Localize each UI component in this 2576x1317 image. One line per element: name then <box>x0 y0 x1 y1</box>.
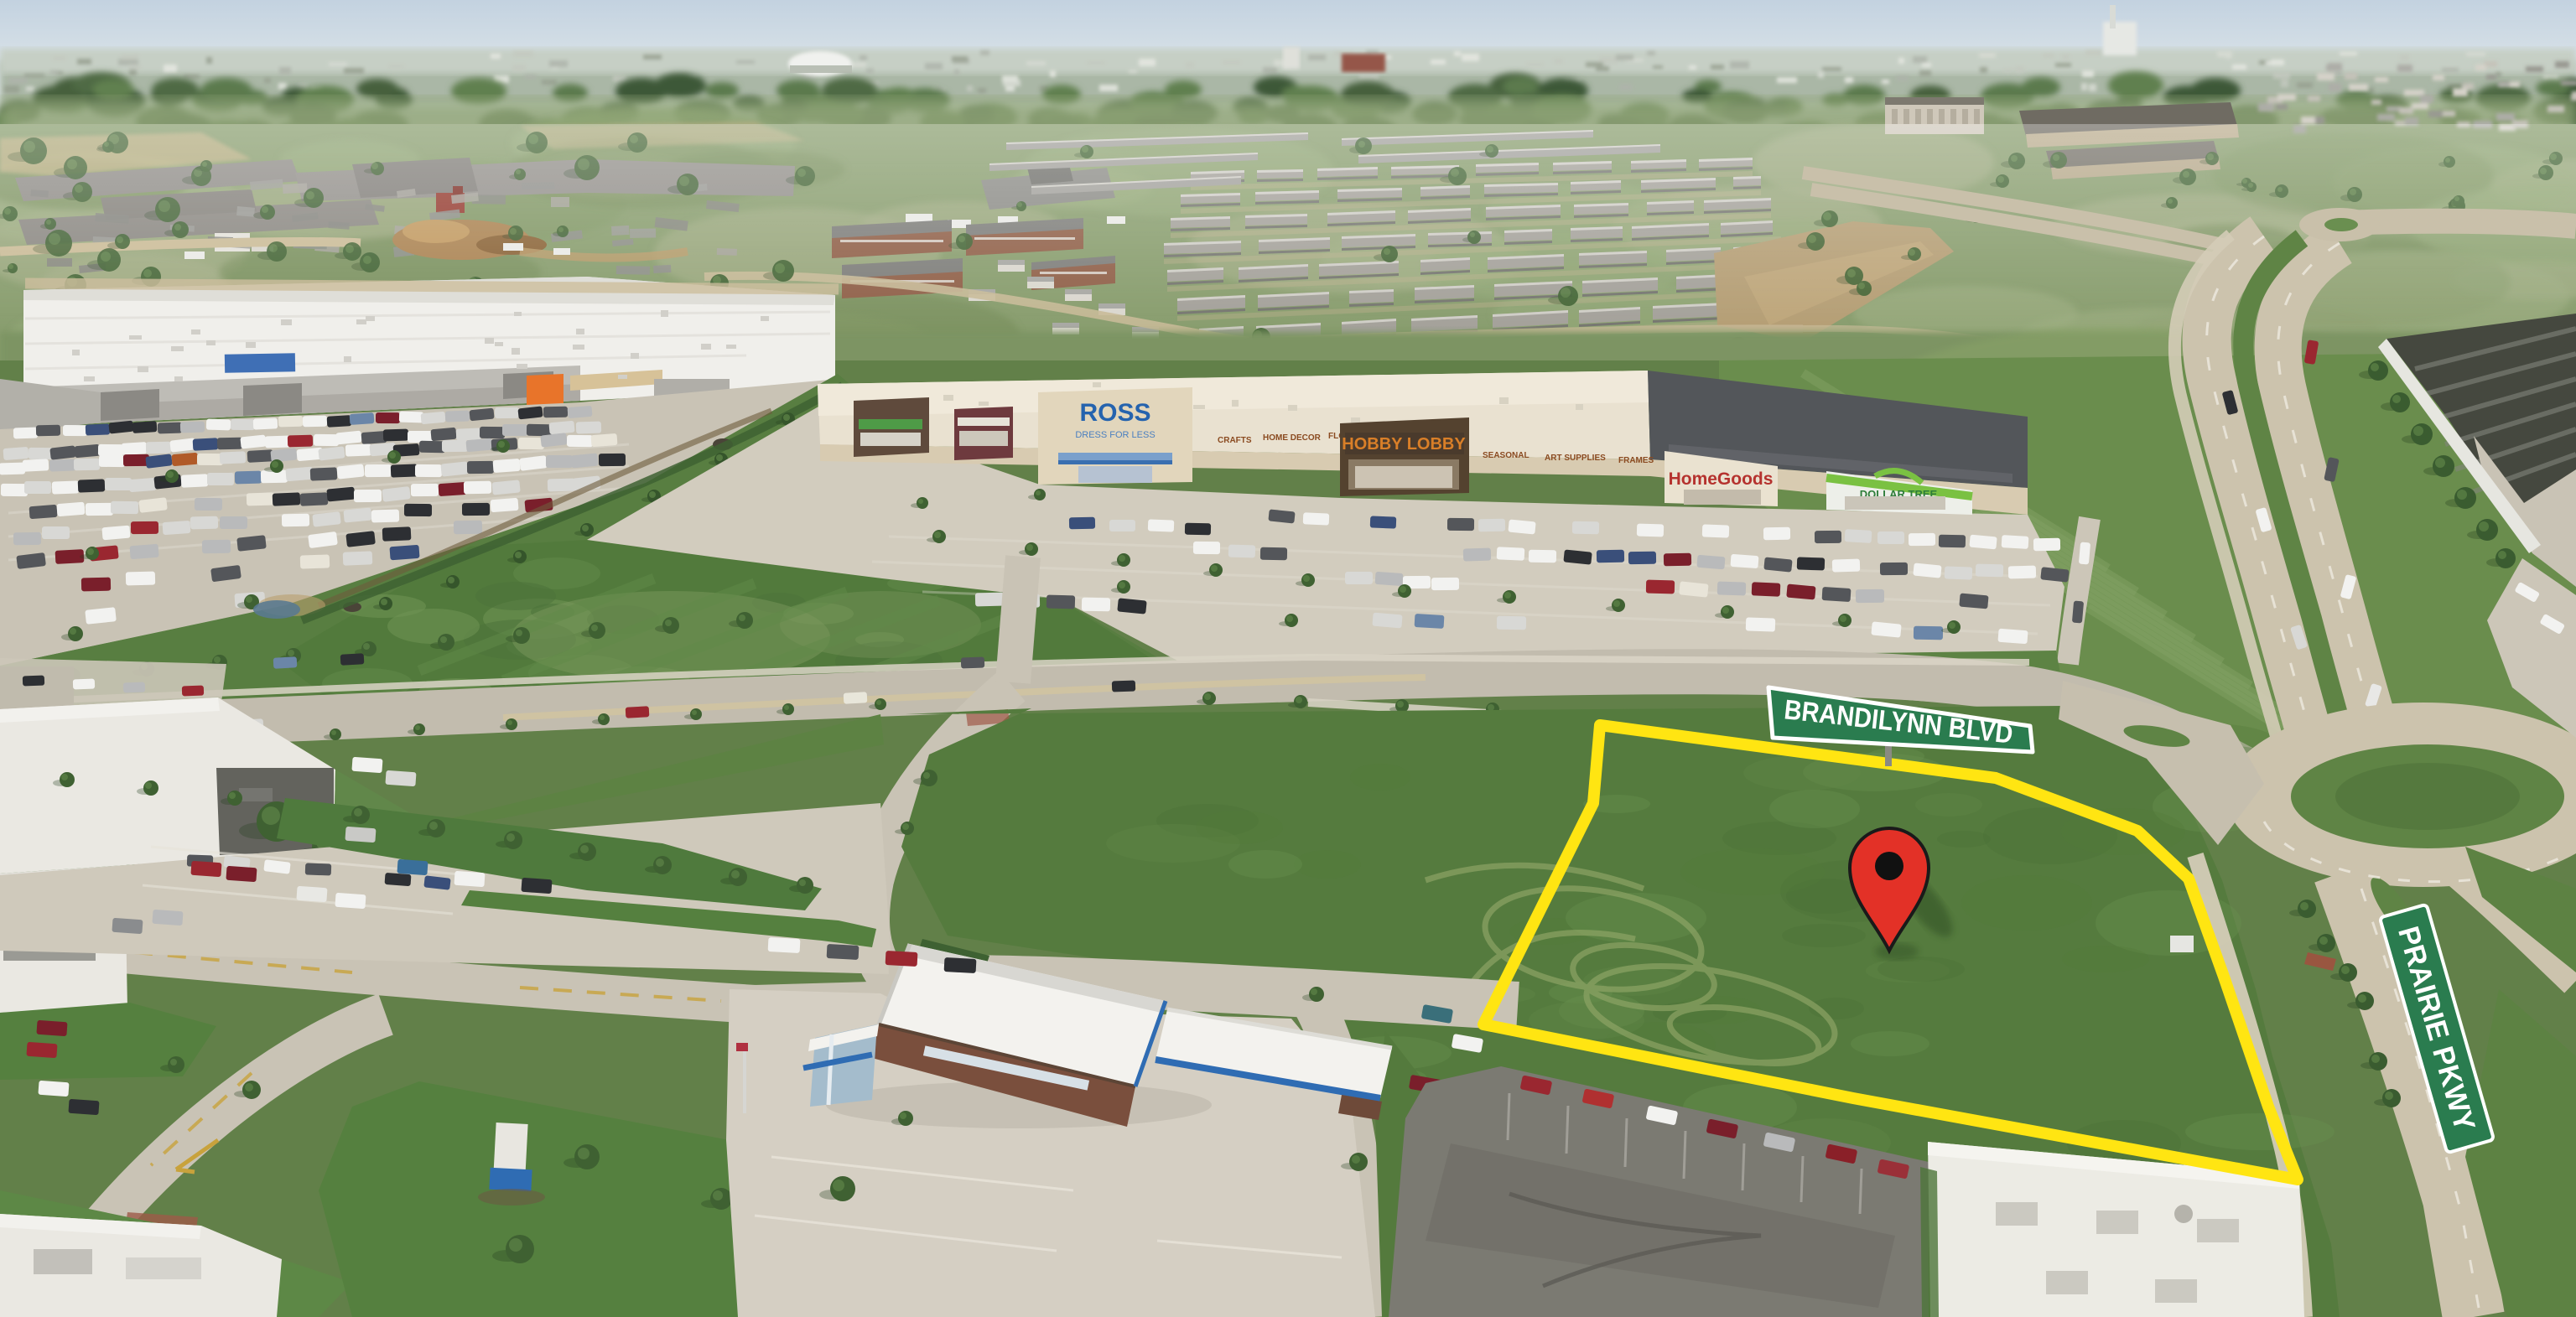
svg-text:SEASONAL: SEASONAL <box>1483 451 1529 460</box>
svg-text:DRESS FOR LESS: DRESS FOR LESS <box>1075 430 1155 440</box>
svg-text:HomeGoods: HomeGoods <box>1669 469 1774 489</box>
svg-text:CRAFTS: CRAFTS <box>1218 436 1252 445</box>
svg-text:HOBBY LOBBY: HOBBY LOBBY <box>1342 435 1466 454</box>
svg-text:FRAMES: FRAMES <box>1618 456 1654 465</box>
svg-text:ART SUPPLIES: ART SUPPLIES <box>1545 454 1606 463</box>
svg-text:HOME DECOR: HOME DECOR <box>1263 433 1322 443</box>
svg-text:ROSS: ROSS <box>1079 399 1150 427</box>
